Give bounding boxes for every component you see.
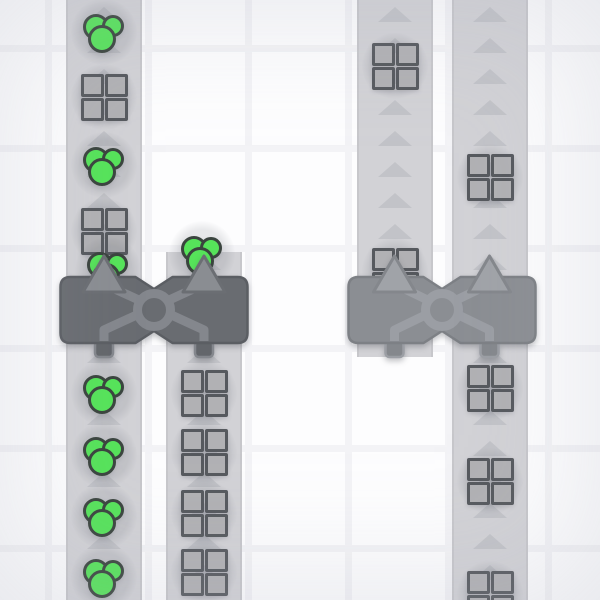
game-world-canvas[interactable] (0, 0, 600, 600)
machines-layer (0, 0, 600, 600)
output-arrow-icon (374, 256, 416, 292)
output-arrow-icon (469, 256, 511, 292)
output-arrow-icon (83, 256, 125, 292)
balancer-right-machine[interactable] (342, 250, 542, 370)
output-arrow-icon (183, 256, 225, 292)
lane-cross-ring (426, 294, 459, 327)
balancer-left-machine[interactable] (54, 250, 254, 370)
lane-cross-ring (138, 294, 171, 327)
